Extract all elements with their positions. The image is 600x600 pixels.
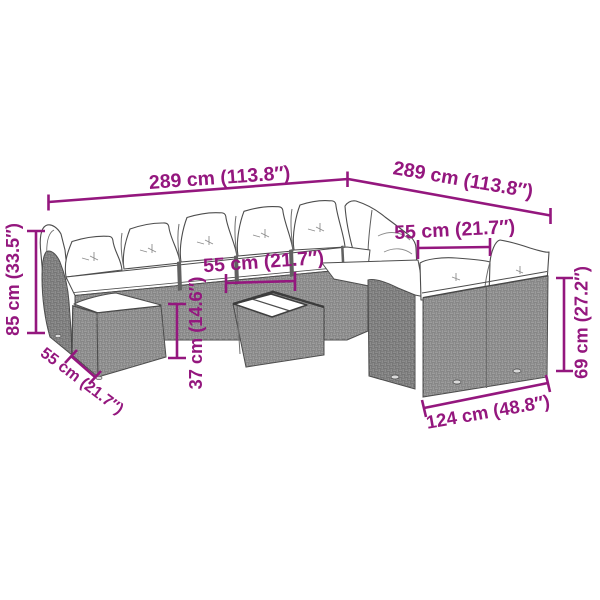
svg-text:37 cm (14.6″): 37 cm (14.6″)	[186, 277, 206, 390]
svg-text:69 cm (27.2″): 69 cm (27.2″)	[572, 266, 592, 379]
svg-text:85 cm (33.5″): 85 cm (33.5″)	[3, 223, 23, 336]
